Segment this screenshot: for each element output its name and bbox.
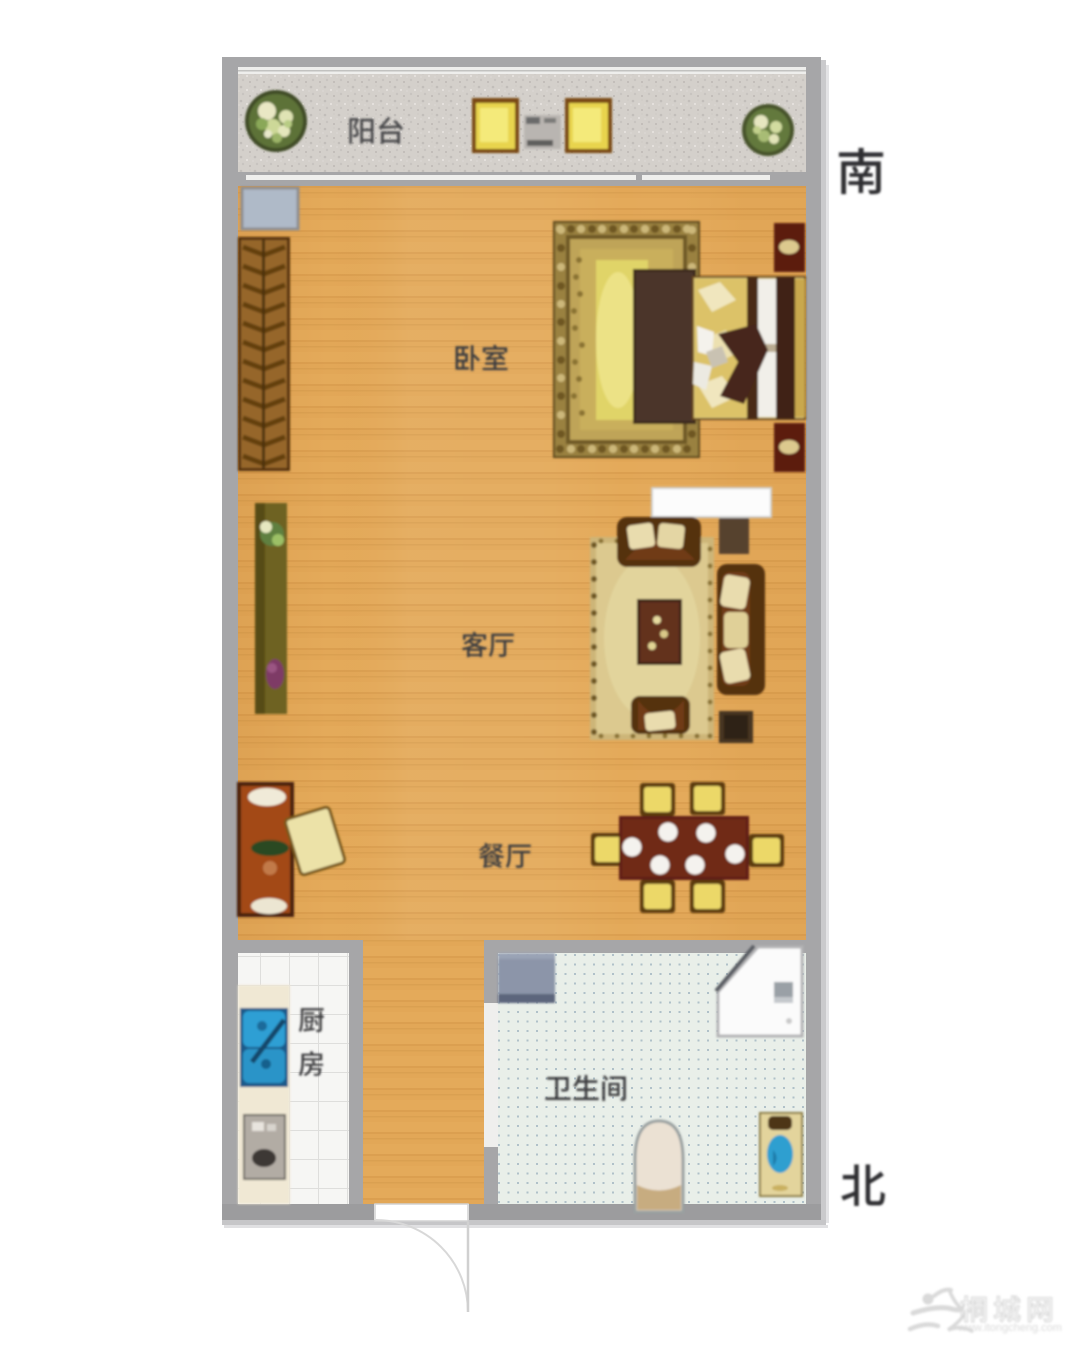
svg-text:www.itongcheng.com: www.itongcheng.com <box>957 1322 1062 1334</box>
